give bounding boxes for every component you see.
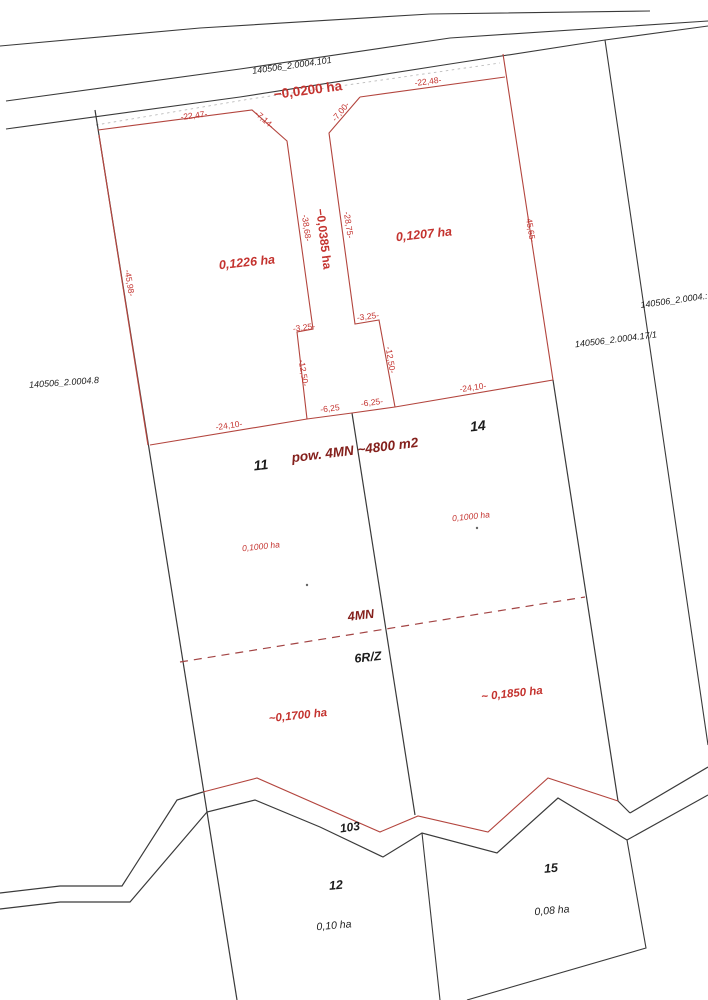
parcel-no-11: 11	[253, 456, 269, 473]
zone-4mn: 4MN	[346, 607, 376, 624]
survey-dot-1	[306, 584, 308, 586]
east-boundary-black-lower	[553, 380, 630, 813]
measure-12-50-left: -12,50-	[297, 359, 311, 387]
parcel-id-101: 140506_2.0004.101	[252, 55, 333, 76]
north-road-lower-line	[6, 26, 708, 129]
southwest-road-upper-line	[0, 792, 203, 893]
area-parcel-15: 0,08 ha	[534, 903, 570, 918]
survey-dot-2	[476, 527, 478, 529]
parcel-id-right-edge: 140506_2.0004.:	[640, 291, 708, 310]
measure-28-75: -28,75-	[342, 211, 356, 239]
measure-6-25-right: -6,25-	[360, 396, 383, 409]
pole-east-red	[329, 97, 395, 407]
parcel-no-14: 14	[469, 417, 486, 435]
parcel-id-17-1: 140506_2.0004.17/1	[574, 329, 657, 349]
road-no-103: 103	[339, 819, 361, 836]
north-road-outer-line	[0, 11, 650, 46]
area-0200: −0,0200 ha	[273, 78, 344, 102]
measure-7-14: -7,14-	[253, 108, 276, 130]
parcel-id-8: 140506_2.0004.8	[29, 375, 100, 390]
south-boundary-upper-parcels	[150, 380, 553, 445]
measure-45-98: -45,98-	[123, 269, 137, 297]
pow-4mn-4800: pow. 4MN ~4800 m2	[290, 435, 420, 466]
north-road-upper-line	[6, 21, 708, 101]
southwest-road-lower-line	[0, 798, 627, 909]
area-1850: ~ 0,1850 ha	[481, 685, 544, 703]
measure-38-68: -38,68-	[300, 214, 314, 242]
west-boundary-red-overlay	[99, 135, 148, 445]
area-parcel-12: 0,10 ha	[316, 918, 352, 933]
north-red-boundary-left-and-pole-west	[98, 110, 313, 419]
area-1700: ~0,1700 ha	[268, 707, 328, 725]
measure-6-25-left: -6,25	[320, 402, 341, 414]
parcel12-15-divider	[422, 833, 440, 1000]
measure-45-65: -45,65-	[524, 215, 538, 243]
parcel-no-12: 12	[328, 878, 343, 893]
cadastral-map: 140506_2.0004.101140506_2.0004.8140506_2…	[0, 0, 708, 1000]
measure-22-47: -22,47-	[180, 109, 208, 122]
area-0385: −0,0385 ha	[313, 208, 334, 271]
area-1207: 0,1207 ha	[395, 224, 452, 244]
area-1000-right: 0,1000 ha	[452, 509, 491, 523]
area-1226: 0,1226 ha	[218, 252, 275, 272]
cadastral-map-page: 140506_2.0004.101140506_2.0004.8140506_2…	[0, 0, 708, 1000]
zone-6rz: 6R/Z	[354, 649, 384, 666]
far-east-boundary-line	[605, 40, 708, 745]
measure-12-50-right: -12,50-	[384, 346, 398, 374]
area-1000-left: 0,1000 ha	[242, 539, 281, 553]
parcel-no-15: 15	[543, 861, 559, 876]
measure-3-25-left: -3,25-	[292, 321, 315, 334]
southeast-road-upper-line	[630, 767, 708, 813]
southeast-road-lower-line	[627, 795, 708, 840]
